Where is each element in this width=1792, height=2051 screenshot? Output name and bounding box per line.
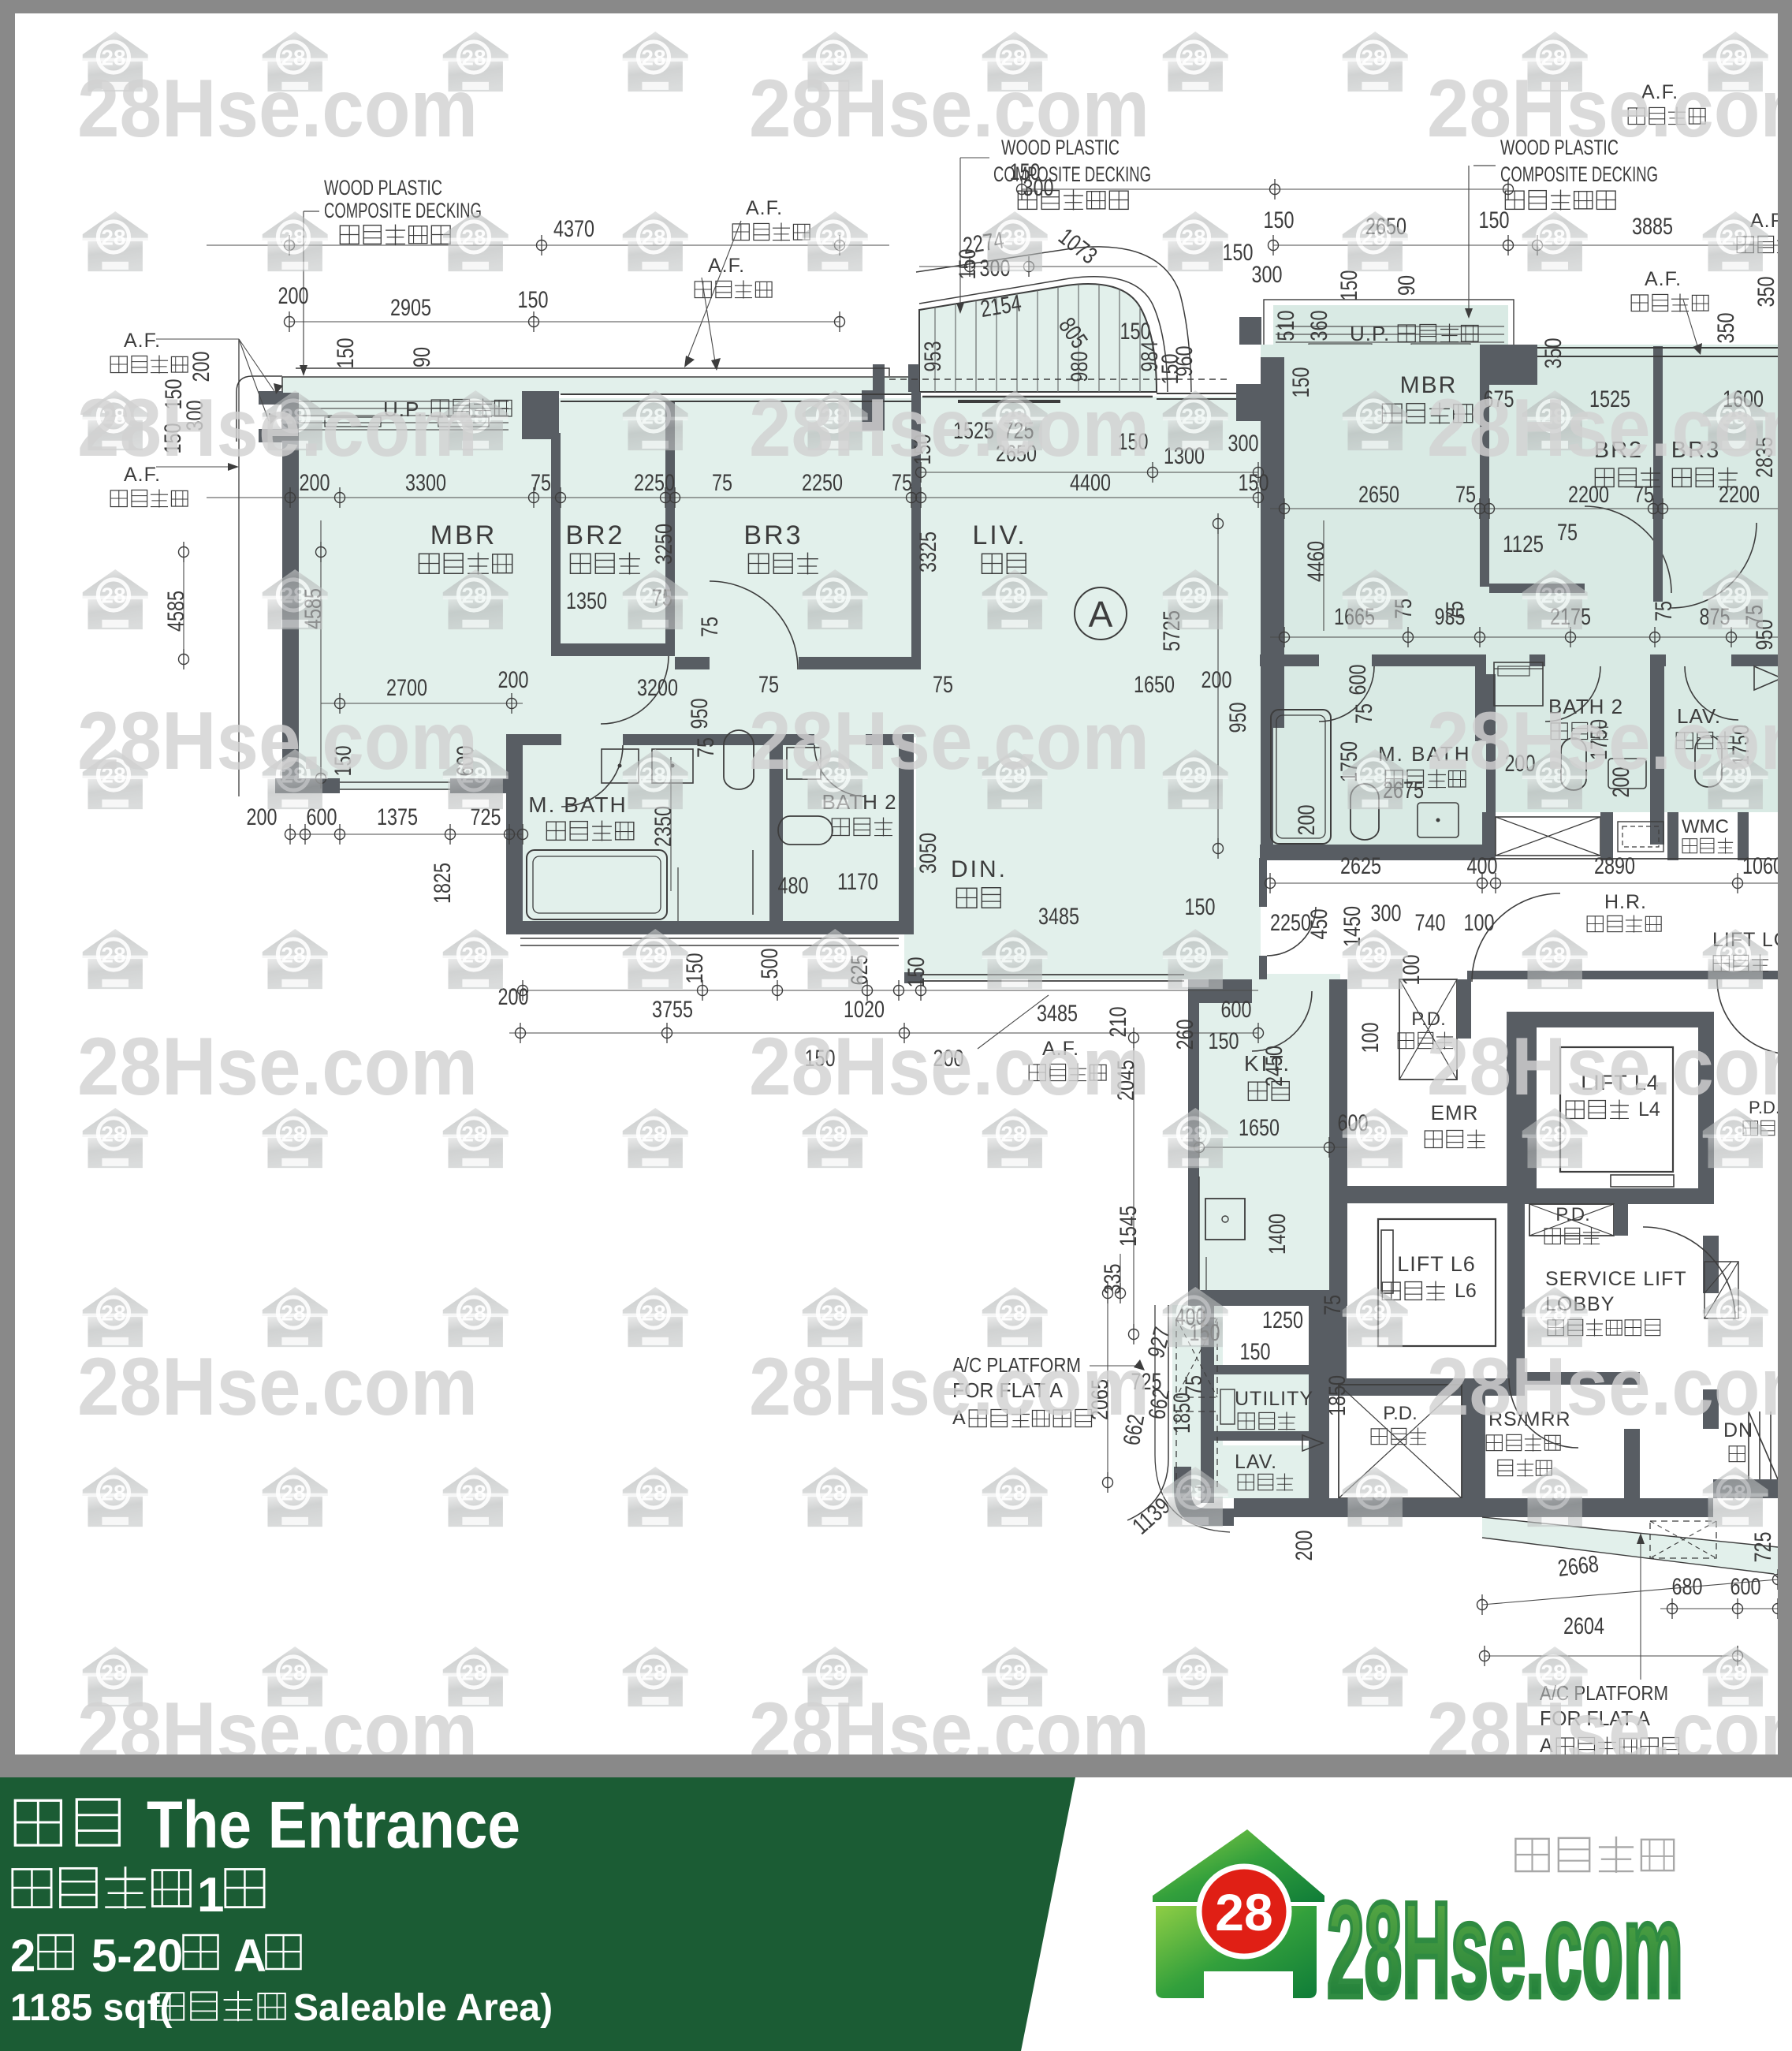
- svg-text:100: 100: [1358, 1023, 1384, 1053]
- svg-text:950: 950: [1225, 703, 1251, 733]
- svg-text:28Hse.com: 28Hse.com: [1427, 1341, 1792, 1433]
- svg-text:DIN.: DIN.: [951, 856, 1008, 882]
- svg-text:725: 725: [1750, 1532, 1776, 1563]
- svg-text:75: 75: [693, 737, 719, 758]
- svg-text:75: 75: [1455, 482, 1476, 508]
- svg-text:2250: 2250: [634, 470, 675, 496]
- svg-text:2650: 2650: [1358, 482, 1399, 508]
- svg-text:3325: 3325: [915, 531, 941, 572]
- svg-text:200: 200: [1201, 667, 1232, 693]
- svg-text:1250: 1250: [1262, 1307, 1303, 1333]
- svg-text:740: 740: [1415, 910, 1446, 936]
- svg-text:100: 100: [1464, 910, 1495, 936]
- svg-text:260: 260: [1172, 1020, 1198, 1050]
- svg-text:200: 200: [278, 283, 309, 309]
- svg-text:150: 150: [1288, 367, 1314, 398]
- svg-text:1650: 1650: [1134, 672, 1175, 698]
- svg-text:150: 150: [1240, 1339, 1271, 1365]
- svg-text:28Hse.com: 28Hse.com: [77, 1341, 478, 1433]
- svg-text:600: 600: [1221, 997, 1252, 1023]
- svg-text:28Hse.com: 28Hse.com: [1427, 1021, 1792, 1113]
- svg-text:200: 200: [1294, 805, 1320, 836]
- svg-text:200: 200: [498, 667, 529, 693]
- svg-text:28Hse.com: 28Hse.com: [1427, 695, 1792, 787]
- svg-text:75: 75: [1181, 1375, 1207, 1396]
- svg-text:28Hse.com: 28Hse.com: [77, 382, 478, 474]
- svg-text:A.F.: A.F.: [746, 197, 783, 219]
- svg-text:980: 980: [1067, 352, 1093, 382]
- svg-text:1545: 1545: [1116, 1206, 1142, 1247]
- svg-text:28: 28: [1215, 1883, 1272, 1941]
- svg-text:A: A: [1089, 594, 1113, 635]
- svg-text:1170: 1170: [837, 869, 878, 895]
- svg-text:960: 960: [1172, 346, 1198, 377]
- svg-text:1650: 1650: [1239, 1115, 1280, 1141]
- svg-text:3885: 3885: [1632, 214, 1673, 240]
- svg-text:75: 75: [1351, 703, 1377, 724]
- svg-text:LIV.: LIV.: [972, 520, 1026, 550]
- svg-text:LIFT L6: LIFT L6: [1397, 1252, 1476, 1276]
- svg-text:28Hse.com: 28Hse.com: [749, 695, 1149, 787]
- svg-text:M. BATH: M. BATH: [528, 792, 627, 817]
- svg-text:3050: 3050: [915, 833, 941, 874]
- svg-text:BR3: BR3: [743, 520, 803, 550]
- svg-text:2450: 2450: [1261, 1046, 1287, 1087]
- svg-text:150: 150: [518, 287, 549, 313]
- svg-text:LAV.: LAV.: [1235, 1451, 1277, 1473]
- svg-text:1125: 1125: [1503, 531, 1544, 557]
- svg-text:COMPOSITE DECKING: COMPOSITE DECKING: [324, 199, 482, 222]
- svg-text:U.P.: U.P.: [1350, 322, 1390, 345]
- svg-text:COMPOSITE DECKING: COMPOSITE DECKING: [1500, 162, 1658, 186]
- svg-text:MBR: MBR: [430, 520, 497, 550]
- svg-text:90: 90: [1394, 275, 1420, 296]
- svg-text:500: 500: [757, 949, 783, 979]
- svg-text:1060: 1060: [1742, 853, 1783, 879]
- svg-text:75: 75: [1442, 601, 1468, 621]
- svg-text:H.R.: H.R.: [1604, 891, 1647, 913]
- svg-text:150: 150: [1336, 270, 1362, 301]
- svg-text:A.F.: A.F.: [1645, 268, 1682, 290]
- svg-text:28Hse.com: 28Hse.com: [749, 63, 1149, 155]
- svg-text:28Hse.com: 28Hse.com: [77, 695, 478, 787]
- svg-text:953: 953: [920, 341, 946, 372]
- svg-text:75: 75: [697, 617, 723, 637]
- svg-text:2: 2: [10, 1930, 35, 1982]
- svg-text:150: 150: [955, 249, 981, 280]
- svg-text:950: 950: [687, 699, 713, 729]
- svg-text:4460: 4460: [1303, 541, 1329, 582]
- svg-text:300: 300: [1023, 175, 1054, 201]
- svg-text:150: 150: [1223, 240, 1254, 266]
- svg-text:1375: 1375: [377, 804, 418, 830]
- svg-text:28Hse.com: 28Hse.com: [1427, 63, 1792, 155]
- svg-text:L6: L6: [1455, 1280, 1477, 1302]
- svg-text:28Hse.com: 28Hse.com: [749, 1021, 1149, 1113]
- svg-text:4585: 4585: [163, 591, 189, 632]
- svg-text:360: 360: [1306, 311, 1332, 341]
- svg-text:680: 680: [1672, 1574, 1703, 1600]
- svg-text:100: 100: [1399, 955, 1425, 986]
- svg-text:2905: 2905: [390, 295, 431, 321]
- svg-text:200: 200: [188, 352, 214, 382]
- svg-text:3485: 3485: [1038, 904, 1079, 930]
- svg-text:2890: 2890: [1594, 853, 1635, 879]
- svg-text:400: 400: [1467, 853, 1498, 879]
- svg-text:1185 sqf(: 1185 sqf(: [10, 1987, 172, 2029]
- svg-text:5-20: 5-20: [91, 1930, 183, 1982]
- svg-text:150: 150: [1479, 207, 1510, 233]
- svg-text:2668: 2668: [1556, 1551, 1600, 1582]
- svg-text:P.D.: P.D.: [1383, 1403, 1418, 1424]
- svg-text:150: 150: [333, 338, 359, 369]
- svg-text:2350: 2350: [650, 806, 676, 847]
- svg-text:335: 335: [1100, 1264, 1126, 1295]
- svg-text:150: 150: [1239, 470, 1269, 496]
- svg-text:300: 300: [1252, 262, 1283, 288]
- svg-text:28Hse.com: 28Hse.com: [77, 1021, 478, 1113]
- svg-text:BR2: BR2: [565, 520, 624, 550]
- svg-text:75: 75: [1320, 1295, 1346, 1315]
- svg-text:P.D.: P.D.: [1555, 1204, 1590, 1225]
- svg-text:90: 90: [409, 347, 435, 367]
- svg-text:The Entrance: The Entrance: [147, 1788, 520, 1862]
- svg-text:2250: 2250: [1270, 910, 1311, 936]
- svg-text:28Hse.com: 28Hse.com: [749, 382, 1149, 474]
- svg-text:600: 600: [1731, 1574, 1761, 1600]
- svg-text:75: 75: [1557, 520, 1578, 546]
- svg-text:3250: 3250: [651, 524, 677, 565]
- svg-text:1: 1: [197, 1868, 224, 1922]
- svg-text:28Hse.com: 28Hse.com: [749, 1341, 1149, 1433]
- svg-text:1020: 1020: [844, 997, 885, 1023]
- svg-text:2604: 2604: [1563, 1613, 1604, 1639]
- svg-text:UTILITY: UTILITY: [1235, 1388, 1313, 1410]
- svg-text:150: 150: [1185, 894, 1216, 920]
- svg-text:1850: 1850: [1324, 1375, 1351, 1416]
- svg-text:75: 75: [712, 470, 732, 496]
- svg-text:300: 300: [1371, 901, 1402, 927]
- svg-text:600: 600: [1345, 665, 1371, 695]
- svg-text:150: 150: [903, 957, 930, 988]
- svg-text:2200: 2200: [1719, 482, 1760, 508]
- svg-text:75: 75: [531, 470, 551, 496]
- svg-text:A: A: [233, 1930, 266, 1982]
- svg-text:28Hse.com: 28Hse.com: [77, 63, 478, 155]
- svg-text:510: 510: [1273, 311, 1299, 341]
- svg-text:28Hse.com: 28Hse.com: [1427, 382, 1792, 474]
- svg-text:WOOD PLASTIC: WOOD PLASTIC: [324, 176, 442, 200]
- svg-text:75: 75: [1651, 601, 1677, 621]
- svg-text:3200: 3200: [637, 675, 678, 701]
- svg-text:350: 350: [1713, 313, 1739, 344]
- svg-text:480: 480: [778, 873, 809, 899]
- svg-text:150: 150: [1120, 319, 1151, 345]
- svg-text:75: 75: [758, 672, 779, 698]
- svg-text:SERVICE LIFT: SERVICE LIFT: [1545, 1268, 1687, 1290]
- svg-text:2625: 2625: [1340, 853, 1381, 879]
- svg-text:1400: 1400: [1265, 1214, 1291, 1255]
- svg-text:350: 350: [1541, 338, 1567, 369]
- svg-text:A.F.: A.F.: [124, 330, 161, 352]
- svg-text:200: 200: [1291, 1531, 1317, 1561]
- svg-text:3755: 3755: [652, 997, 693, 1023]
- svg-text:300: 300: [1228, 431, 1259, 457]
- svg-text:4370: 4370: [553, 216, 594, 242]
- svg-text:1825: 1825: [430, 863, 456, 904]
- svg-text:2200: 2200: [1568, 482, 1609, 508]
- svg-text:450: 450: [1306, 909, 1332, 940]
- svg-text:350: 350: [1753, 277, 1779, 308]
- svg-text:WMC: WMC: [1682, 816, 1729, 837]
- svg-text:Saleable Area): Saleable Area): [293, 1987, 553, 2029]
- svg-text:150: 150: [1209, 1028, 1239, 1054]
- svg-text:28Hse.com: 28Hse.com: [1327, 1874, 1683, 2026]
- svg-text:1350: 1350: [566, 588, 607, 614]
- svg-text:150: 150: [1264, 207, 1295, 233]
- svg-text:75: 75: [933, 672, 953, 698]
- svg-text:75: 75: [1634, 482, 1654, 508]
